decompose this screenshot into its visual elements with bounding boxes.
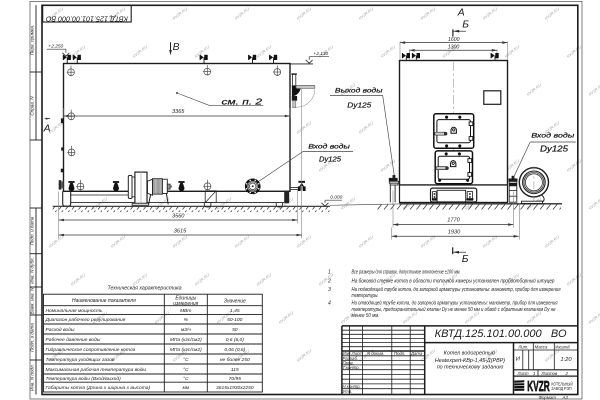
svg-text:Подп. и дата: Подп. и дата [30, 216, 35, 245]
svg-text:Heatexpert-КВр-1,45-Д(РВР): Heatexpert-КВр-1,45-Д(РВР) [435, 358, 505, 364]
svg-text:измерения: измерения [173, 301, 198, 307]
svg-text:Масштаб: Масштаб [555, 345, 570, 350]
svg-text:3: 3 [328, 287, 331, 293]
svg-text:КВТД.125.101.00.000 ВО: КВТД.125.101.00.000 ВО [435, 328, 567, 340]
svg-text:Dy125: Dy125 [540, 143, 568, 153]
svg-text:А: А [43, 124, 51, 135]
svg-text:115: 115 [231, 367, 239, 373]
svg-text:3365: 3365 [172, 109, 185, 115]
svg-text:Подп. и дата: Подп. и дата [30, 323, 35, 352]
svg-text:На боковой стенке котла в обла: На боковой стенке котла в области топочн… [352, 278, 555, 285]
svg-text:м3/ч: м3/ч [181, 327, 191, 333]
svg-text:Габариты котла (Длина х ширина: Габариты котла (Длина х ширина х высота) [46, 385, 151, 391]
svg-text:МПа (кгс/см2): МПа (кгс/см2) [170, 347, 202, 353]
svg-text:Б: Б [462, 20, 469, 31]
svg-text:3615х1930х2250: 3615х1930х2250 [216, 385, 254, 391]
svg-text:Взам. инв. N: Взам. инв. N [30, 287, 35, 314]
svg-text:Температура уходящих газов: Температура уходящих газов [46, 357, 115, 363]
svg-text:Утв.: Утв. [343, 389, 353, 394]
svg-text:А: А [457, 8, 465, 19]
svg-text:Т.контр.: Т.контр. [343, 365, 360, 370]
svg-text:1300: 1300 [448, 45, 460, 51]
svg-text:Dy125: Dy125 [319, 155, 342, 164]
svg-text:°С: °С [183, 376, 189, 382]
svg-text:0,6 (6,0): 0,6 (6,0) [226, 337, 245, 343]
svg-text:Листов: Листов [541, 371, 558, 376]
svg-text:3615: 3615 [174, 229, 187, 235]
svg-text:1,45: 1,45 [230, 308, 240, 314]
svg-text:Масса: Масса [535, 345, 548, 350]
svg-text:Dy125: Dy125 [347, 100, 372, 109]
svg-text:3560: 3560 [172, 214, 185, 220]
svg-text:МПа (кгс/см2): МПа (кгс/см2) [170, 337, 202, 343]
svg-text:Номинальная мощность: Номинальная мощность [46, 308, 104, 314]
svg-text:по техническому заданию: по техническому заданию [437, 365, 504, 371]
svg-text:Диапазон рабочего регулировани: Диапазон рабочего регулирования [45, 317, 126, 323]
svg-text:Техническая характеристика: Техническая характеристика [108, 285, 182, 291]
svg-text:50-100: 50-100 [227, 317, 243, 323]
svg-text:Перв. примен.: Перв. примен. [30, 25, 35, 56]
svg-text:KVZR: KVZR [527, 379, 550, 395]
svg-text:Лит.: Лит. [517, 345, 528, 350]
svg-text:На отводящей трубе котла, до з: На отводящей трубе котла, до запорной ар… [352, 300, 558, 307]
svg-text:МВт: МВт [180, 308, 191, 314]
svg-text:Инв. N дубл.: Инв. N дубл. [30, 257, 35, 284]
svg-text:Значение: Значение [224, 298, 246, 304]
svg-text:Подп.: Подп. [394, 351, 405, 356]
svg-text:см. п. 2: см. п. 2 [222, 97, 263, 106]
svg-text:КВТД.125.101.00.000 ВО: КВТД.125.101.00.000 ВО [45, 14, 127, 23]
svg-text:Лист: Лист [517, 371, 529, 376]
svg-text:%: % [184, 317, 189, 323]
svg-text:мм: мм [182, 386, 189, 391]
svg-text:Наименование показателя: Наименование показателя [72, 298, 136, 304]
svg-text:менее 50 мм.: менее 50 мм. [352, 313, 380, 319]
svg-text:А3: А3 [562, 395, 569, 400]
svg-text:°С: °С [183, 367, 189, 373]
svg-text:температуры.: температуры. [352, 293, 379, 299]
svg-text:1930: 1930 [448, 229, 461, 235]
svg-text:70/95: 70/95 [229, 376, 242, 382]
svg-text:Расход воды: Расход воды [46, 327, 75, 333]
svg-text:Б: Б [462, 254, 469, 265]
svg-text:Вход воды: Вход воды [308, 143, 350, 151]
svg-text:0.000: 0.000 [330, 194, 342, 200]
svg-text:температуры, предохранительный: температуры, предохранительный клапан Dу… [352, 306, 556, 313]
svg-text:1: 1 [328, 270, 331, 276]
svg-text:°С: °С [183, 357, 189, 363]
svg-text:1:20: 1:20 [560, 357, 572, 363]
svg-text:Инв. N подл.: Инв. N подл. [30, 364, 35, 391]
svg-text:На подводящей трубе котла, д: На подводящей трубе котла, до запорной а… [352, 286, 561, 293]
svg-text:0,06 (0,6): 0,06 (0,6) [224, 347, 245, 353]
svg-text:4: 4 [328, 301, 331, 307]
svg-text:Вход воды: Вход воды [531, 131, 574, 139]
svg-text:+2.130: +2.130 [313, 51, 328, 57]
svg-text:ЗАВОД РЭП: ЗАВОД РЭП [551, 386, 571, 391]
svg-text:не более 250: не более 250 [220, 357, 250, 363]
svg-text:Рабочее давление воды: Рабочее давление воды [46, 337, 101, 343]
svg-text:Справ. N: Справ. N [30, 96, 35, 116]
svg-text:Гидравлическое сопротивление к: Гидравлическое сопротивление котла [46, 347, 136, 353]
svg-text:+2.250: +2.250 [48, 44, 63, 50]
svg-text:Дата: Дата [410, 351, 423, 356]
svg-text:Котел водогрейный: Котел водогрейный [444, 350, 495, 357]
svg-text:N докум.: N докум. [367, 351, 384, 356]
svg-text:2: 2 [327, 279, 331, 285]
svg-text:1770: 1770 [447, 218, 460, 224]
svg-text:50: 50 [232, 327, 238, 333]
svg-text:Максимальная рабочая температу: Максимальная рабочая температура воды [46, 367, 147, 373]
svg-text:Температура воды (Вход/выход): Температура воды (Вход/выход) [46, 376, 122, 382]
svg-text:1600: 1600 [448, 37, 460, 43]
svg-text:Все размеры для справок, допус: Все размеры для справок, допустимое откл… [352, 270, 461, 276]
svg-text:Формат: Формат [539, 395, 557, 400]
svg-text:В: В [173, 42, 180, 53]
svg-text:Выход воды: Выход воды [335, 87, 383, 95]
